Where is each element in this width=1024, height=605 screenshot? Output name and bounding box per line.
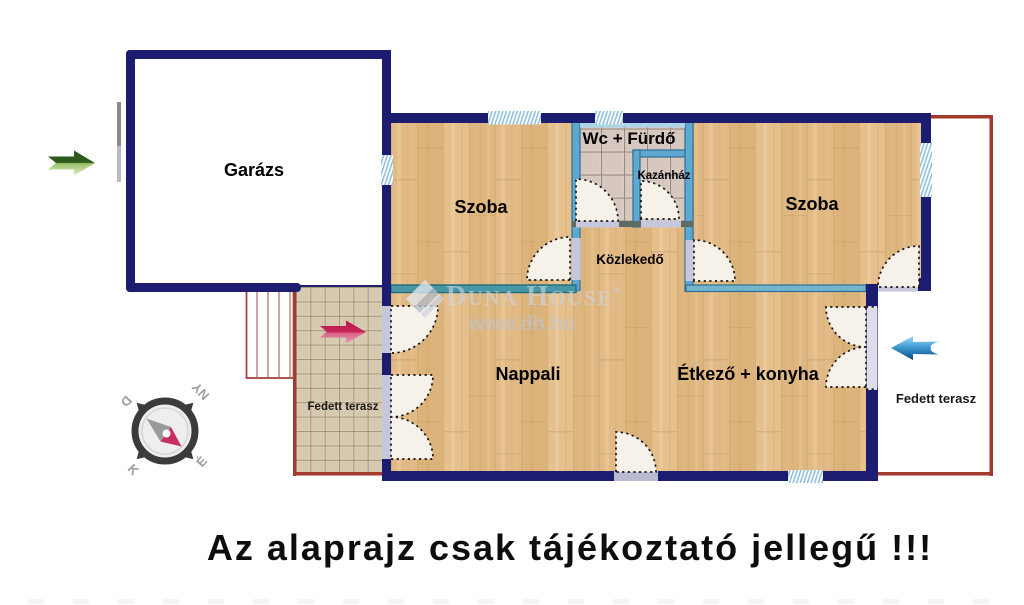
svg-text:Fedett terasz: Fedett terasz [308,401,379,413]
svg-text:Közlekedő: Közlekedő [596,252,664,267]
svg-text:Nappali: Nappali [495,364,560,384]
svg-text:Fedett terasz: Fedett terasz [896,391,977,406]
svg-text:Wc + Fürdő: Wc + Fürdő [582,129,675,148]
svg-text:Garázs: Garázs [224,160,284,180]
svg-text:Szoba: Szoba [785,194,839,214]
svg-text:Szoba: Szoba [454,197,508,217]
svg-text:DUNA HOUSE®: DUNA HOUSE® [446,281,622,312]
svg-text:Az alaprajz csak tájékoztató j: Az alaprajz csak tájékoztató jellegű !!! [207,527,933,568]
svg-text:Étkező + konyha: Étkező + konyha [677,363,820,384]
svg-text:Kazánház: Kazánház [637,170,690,182]
svg-text:www.dh.hu: www.dh.hu [468,313,575,335]
